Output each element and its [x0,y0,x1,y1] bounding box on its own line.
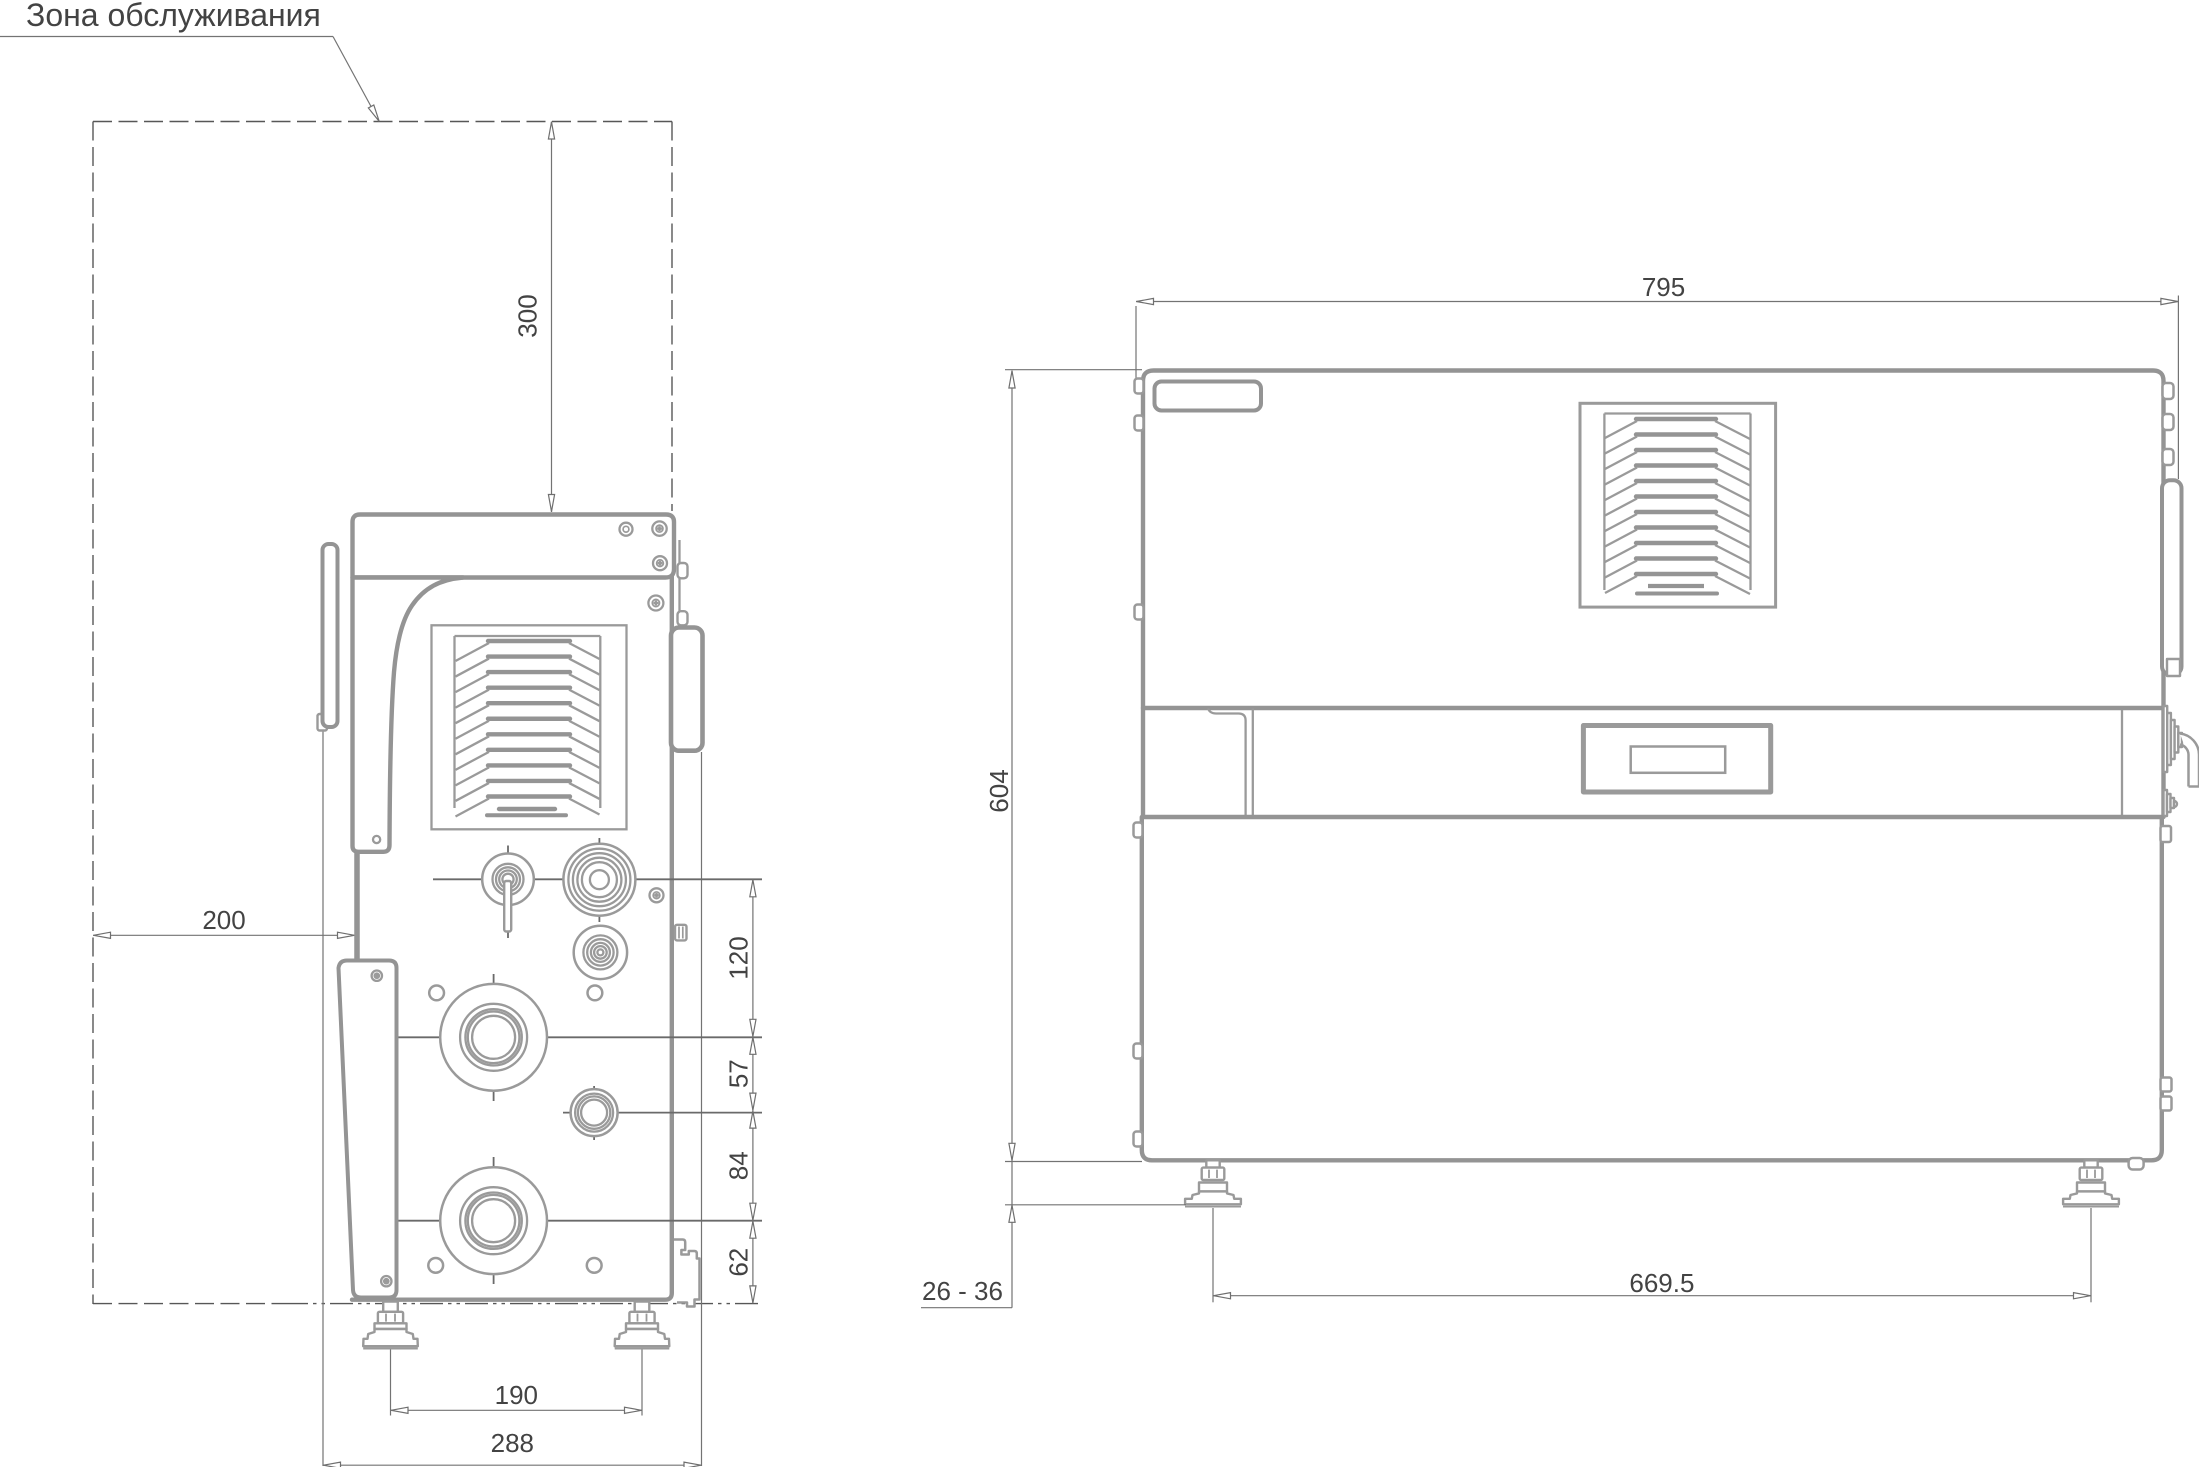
svg-text:200: 200 [202,905,245,935]
svg-text:795: 795 [1642,272,1685,302]
svg-text:57: 57 [724,1059,754,1088]
svg-text:300: 300 [513,294,543,337]
svg-text:604: 604 [984,769,1014,812]
svg-text:288: 288 [491,1428,534,1458]
svg-text:62: 62 [724,1248,754,1277]
svg-text:190: 190 [495,1380,538,1410]
svg-text:120: 120 [724,936,754,979]
svg-text:Зона обслуживания: Зона обслуживания [26,0,321,33]
svg-text:84: 84 [724,1151,754,1180]
svg-text:26 - 36: 26 - 36 [922,1276,1003,1306]
svg-text:669.5: 669.5 [1629,1268,1694,1298]
